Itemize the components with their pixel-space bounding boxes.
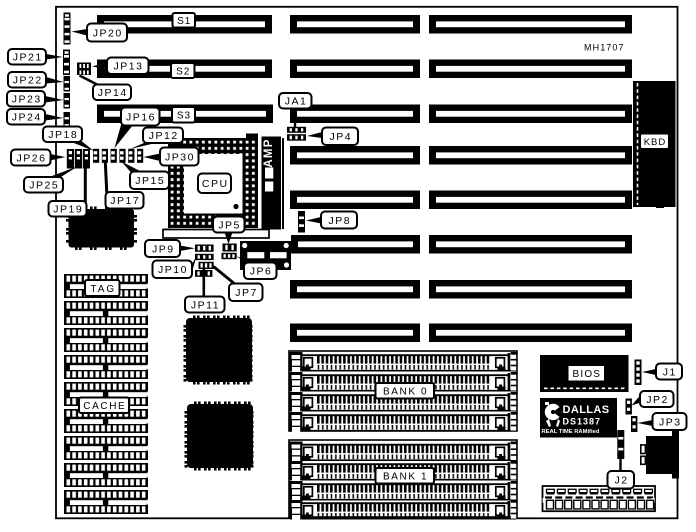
svg-text:JP3: JP3 (659, 416, 682, 428)
svg-text:JP4: JP4 (329, 131, 352, 143)
svg-text:JP12: JP12 (149, 130, 179, 142)
svg-text:JP6: JP6 (250, 266, 273, 278)
svg-text:S1: S1 (177, 16, 191, 27)
svg-text:JP19: JP19 (53, 204, 83, 216)
svg-text:JP23: JP23 (12, 94, 42, 106)
svg-text:BANK 1: BANK 1 (383, 472, 428, 483)
svg-text:JP13: JP13 (114, 61, 144, 73)
svg-text:J1: J1 (663, 366, 677, 378)
svg-text:JP2: JP2 (646, 394, 669, 406)
svg-text:JP14: JP14 (98, 87, 128, 99)
svg-text:BANK 0: BANK 0 (383, 387, 428, 398)
svg-text:DALLAS: DALLAS (563, 404, 610, 416)
svg-text:JP26: JP26 (17, 152, 47, 164)
svg-text:REAL TIME RAMified: REAL TIME RAMified (542, 429, 600, 435)
svg-text:JP7: JP7 (235, 287, 258, 299)
svg-text:JP30: JP30 (165, 151, 195, 163)
svg-text:JP9: JP9 (152, 243, 175, 255)
svg-text:CPU: CPU (202, 178, 229, 190)
svg-text:JP24: JP24 (12, 112, 42, 124)
svg-text:JP15: JP15 (135, 175, 165, 187)
svg-text:JP17: JP17 (110, 195, 140, 207)
svg-text:DS1387: DS1387 (563, 417, 602, 427)
svg-text:S3: S3 (177, 111, 191, 122)
svg-text:JP11: JP11 (191, 299, 220, 311)
svg-text:CACHE: CACHE (83, 401, 126, 412)
svg-text:JP21: JP21 (13, 52, 43, 64)
svg-text:KBD: KBD (644, 137, 667, 148)
svg-text:J2: J2 (614, 475, 628, 487)
svg-text:S2: S2 (176, 66, 190, 77)
svg-text:JP5: JP5 (218, 219, 241, 231)
svg-text:JP25: JP25 (29, 180, 59, 192)
svg-text:JP18: JP18 (48, 129, 78, 141)
svg-text:JP22: JP22 (13, 75, 43, 87)
svg-text:BIOS: BIOS (572, 369, 601, 380)
svg-text:JP16: JP16 (126, 111, 156, 123)
svg-text:JP20: JP20 (93, 27, 123, 39)
svg-text:JA1: JA1 (285, 96, 308, 108)
svg-text:MH1707: MH1707 (584, 43, 625, 53)
svg-text:JP8: JP8 (328, 215, 351, 227)
svg-text:AMP: AMP (263, 138, 275, 167)
svg-text:JP10: JP10 (158, 264, 188, 276)
svg-text:TAG: TAG (90, 284, 116, 295)
